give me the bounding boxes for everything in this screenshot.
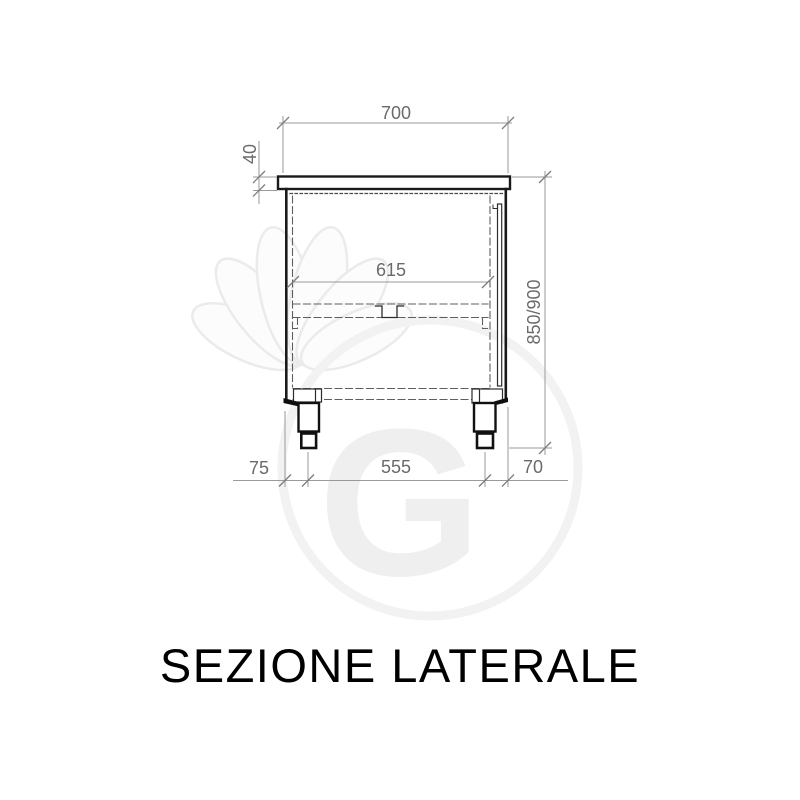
dim-700 bbox=[277, 116, 514, 173]
dim-label-850-900: 850/900 bbox=[524, 279, 544, 344]
page-title: SEZIONE LATERALE bbox=[0, 638, 800, 693]
door-top-step bbox=[493, 205, 498, 209]
watermark-logo: G bbox=[183, 222, 578, 620]
worktop bbox=[278, 177, 510, 190]
watermark-letter: G bbox=[318, 385, 481, 620]
dim-label-75: 75 bbox=[249, 458, 269, 478]
dim-label-40: 40 bbox=[240, 144, 260, 164]
foot-right bbox=[477, 434, 493, 449]
dim-label-615: 615 bbox=[376, 260, 406, 280]
leg-left bbox=[299, 403, 320, 432]
drawing-page: G bbox=[0, 0, 800, 800]
dim-label-555: 555 bbox=[381, 457, 411, 477]
dim-label-700: 700 bbox=[381, 103, 411, 123]
mounting-plate-left bbox=[294, 389, 322, 402]
dim-label-70: 70 bbox=[523, 457, 543, 477]
door-panel bbox=[498, 204, 502, 386]
foot-left bbox=[301, 434, 316, 449]
leg-right bbox=[474, 403, 496, 432]
